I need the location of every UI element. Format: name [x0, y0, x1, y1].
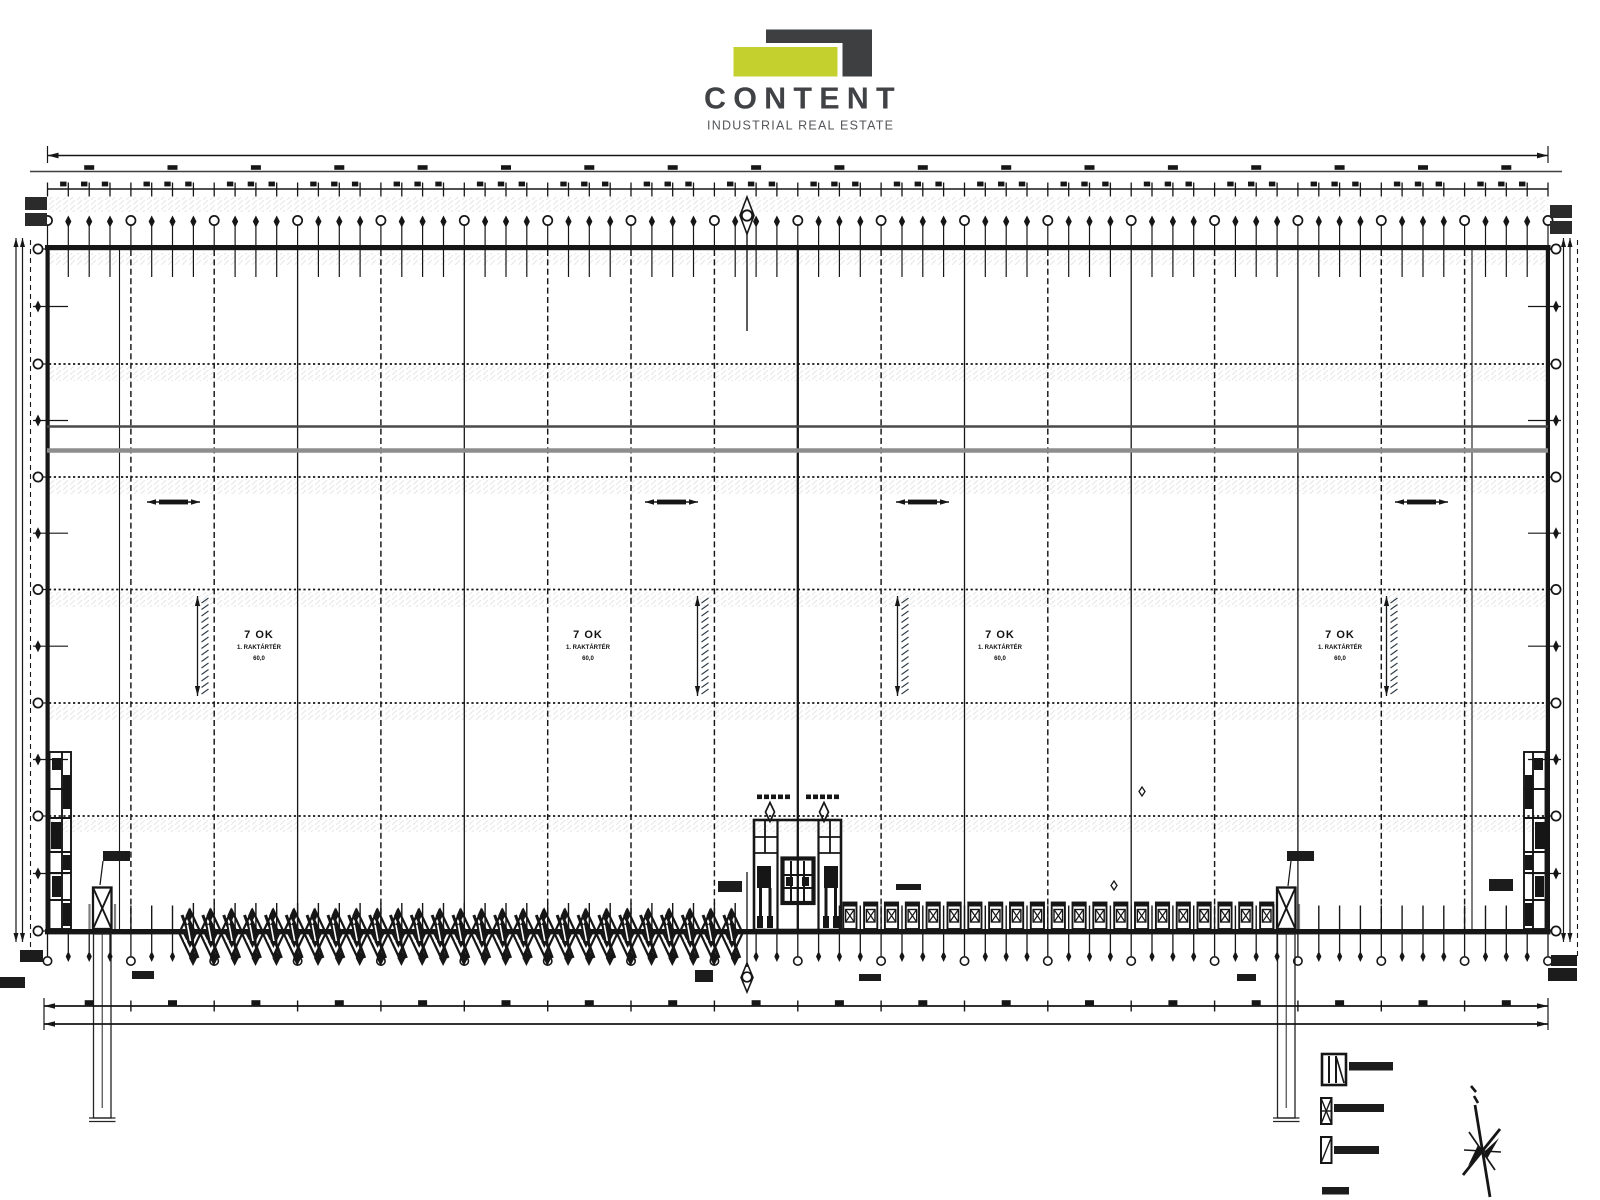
svg-text:60,0: 60,0 — [994, 656, 1006, 662]
svg-text:60,0: 60,0 — [253, 656, 265, 662]
svg-text:7 OK: 7 OK — [1325, 629, 1355, 641]
svg-text:7 OK: 7 OK — [985, 629, 1015, 641]
svg-text:CONTENT: CONTENT — [704, 82, 902, 116]
svg-text:60,0: 60,0 — [1334, 656, 1346, 662]
svg-text:7 OK: 7 OK — [244, 629, 274, 641]
svg-text:INDUSTRIAL REAL ESTATE: INDUSTRIAL REAL ESTATE — [707, 119, 894, 133]
svg-text:1. RAKTÁRTÉR: 1. RAKTÁRTÉR — [566, 643, 611, 651]
svg-text:1. RAKTÁRTÉR: 1. RAKTÁRTÉR — [237, 643, 282, 651]
svg-text:7 OK: 7 OK — [573, 629, 603, 641]
svg-text:1. RAKTÁRTÉR: 1. RAKTÁRTÉR — [978, 643, 1023, 651]
svg-text:60,0: 60,0 — [582, 656, 594, 662]
svg-text:1. RAKTÁRTÉR: 1. RAKTÁRTÉR — [1318, 643, 1363, 651]
